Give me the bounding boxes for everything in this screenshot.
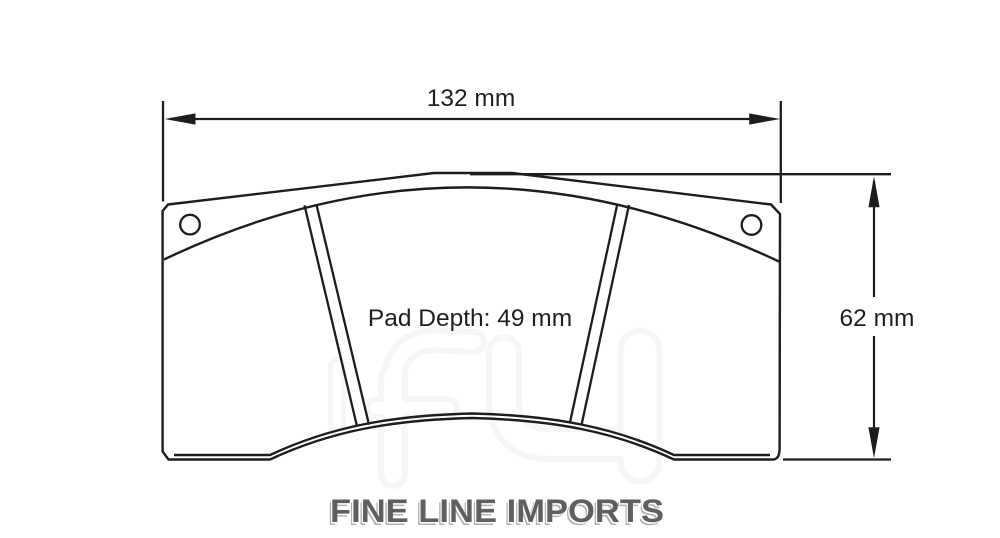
svg-text:62 mm: 62 mm <box>840 305 915 332</box>
svg-text:132 mm: 132 mm <box>427 85 516 112</box>
svg-text:Pad Depth: 49 mm: Pad Depth: 49 mm <box>368 305 572 332</box>
svg-text:FINE LINE IMPORTS: FINE LINE IMPORTS <box>330 493 664 529</box>
